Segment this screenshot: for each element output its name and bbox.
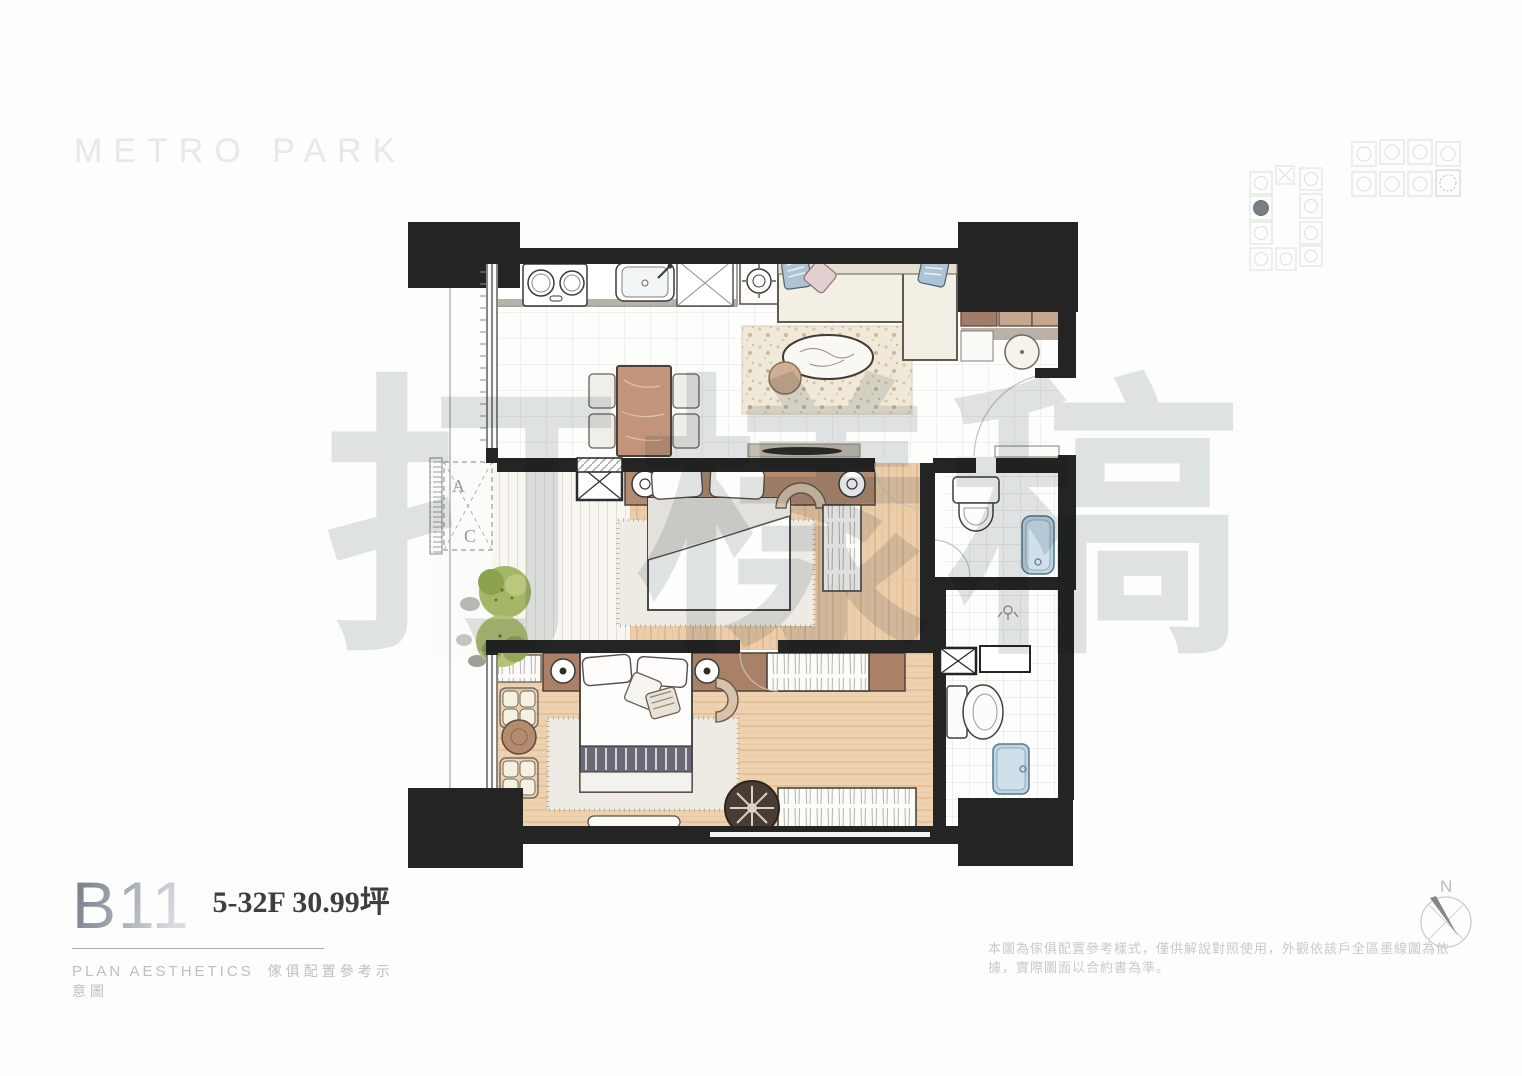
sink-icon <box>993 744 1029 794</box>
bathtub-icon <box>1022 516 1054 574</box>
bottom-window-line <box>710 832 930 837</box>
ac-grille <box>430 458 442 554</box>
unit-title-block: B115-32F 30.99坪 PLAN AESTHETICS傢俱配置參考示意圖 <box>72 872 402 1001</box>
wall-right-lower <box>1058 590 1074 800</box>
bedroom2-bed <box>580 650 692 792</box>
unit-code: B11 <box>72 872 191 938</box>
compass: N <box>1406 872 1486 962</box>
left-window-lower <box>486 655 498 788</box>
dining-table <box>617 366 671 456</box>
wall-living-master-a <box>497 458 577 472</box>
compass-needle <box>1430 896 1458 936</box>
tv-icon <box>762 447 842 455</box>
wall-master-bedroom2-b <box>778 640 935 653</box>
dining-chair <box>673 374 699 408</box>
pillow <box>582 654 632 686</box>
ac-label-a: A <box>452 476 465 496</box>
wardrobe <box>767 653 869 691</box>
wall-bath1-bath2 <box>933 577 1073 590</box>
unit-floor-area: 5-32F 30.99坪 <box>213 877 390 921</box>
wall-master-bedroom2-a <box>487 640 740 653</box>
cabinet-x-icon <box>677 260 733 306</box>
sink-icon <box>616 263 674 301</box>
long-wardrobe <box>778 788 916 828</box>
left-window-upper <box>480 264 498 448</box>
column-top-right <box>958 222 1078 312</box>
dining-chair <box>589 414 615 448</box>
stove-icon <box>523 264 587 306</box>
disclaimer-text: 本圖為傢俱配置參考樣式，僅供解說對照使用，外觀依該戶全區墨線圖為依據，實際圖面以… <box>988 938 1458 976</box>
column-bottom-left <box>408 788 523 868</box>
bath2-shaft-boxes <box>940 646 1030 674</box>
wall-right-upper <box>1058 312 1076 373</box>
dining-chair <box>673 414 699 448</box>
wall-top <box>487 248 958 264</box>
hatched-wall-section <box>577 458 622 472</box>
wall-bath2-left <box>933 590 946 828</box>
wall-right-mid <box>1058 455 1076 590</box>
kitchen <box>497 260 737 307</box>
ac-label-c: C <box>464 526 476 546</box>
ottoman <box>769 362 801 394</box>
wall-living-master-b <box>622 458 875 472</box>
toilet-icon <box>947 685 1003 739</box>
tv-unit <box>748 444 860 457</box>
entry-shoe-bench <box>995 446 1059 457</box>
caption-en: PLAN AESTHETICS <box>72 963 254 980</box>
master-wardrobe <box>823 505 861 591</box>
plan-caption: PLAN AESTHETICS傢俱配置參考示意圖 <box>72 961 402 1001</box>
round-side-table <box>502 720 536 754</box>
divider-rule <box>72 948 324 949</box>
wall-master-bath1 <box>920 463 935 650</box>
column-bottom-right <box>958 798 1073 866</box>
compass-north-label: N <box>1440 877 1452 896</box>
brochure-page: METRO PARK <box>0 0 1522 1076</box>
compass-cross <box>1429 905 1463 939</box>
dining-chair <box>589 374 615 408</box>
side-table-lamp-icon <box>740 258 778 304</box>
